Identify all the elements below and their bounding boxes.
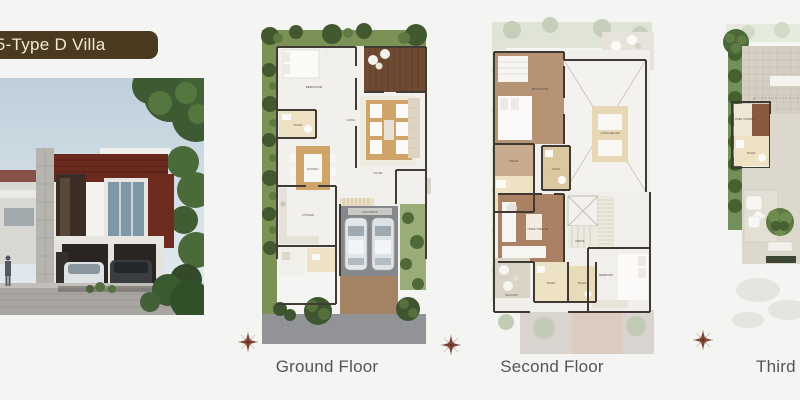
room-label-kitchen: KITCHEN bbox=[302, 214, 314, 217]
car-porch: CAR PORCH bbox=[340, 206, 398, 276]
room-label-toilet5: TOILET bbox=[746, 152, 756, 155]
villa-building bbox=[36, 148, 174, 294]
floor-plan-ground: DECK BEDROOM TOILET DINING LIVING F bbox=[256, 8, 432, 360]
villa-type-title: 75-Type D Villa bbox=[0, 35, 105, 55]
floor-label-third: Third Floor bbox=[756, 357, 800, 377]
room-label-dress2: DRESS bbox=[575, 240, 584, 243]
room-label-toilet2: TOILET bbox=[551, 168, 561, 171]
room-label-toilet4: TOILET bbox=[577, 282, 587, 285]
room-label-car-porch: CAR PORCH bbox=[362, 211, 378, 214]
floor-plan-third: OPEN SHOWER TOILET bbox=[718, 10, 800, 360]
room-label-home-theatre: HOME THEATRE bbox=[528, 228, 549, 231]
room-label-bedroom: BEDROOM bbox=[306, 85, 323, 89]
floor-label-ground: Ground Floor bbox=[240, 357, 414, 377]
deck-area: DECK bbox=[364, 46, 426, 92]
compass-icon bbox=[238, 332, 258, 352]
room-label-bedroom2: BEDROOM bbox=[599, 274, 613, 277]
room-label-dining: DINING bbox=[307, 167, 319, 171]
room-label-bedroom1: BEDROOM bbox=[532, 87, 549, 91]
room-label-toilet: TOILET bbox=[293, 124, 303, 127]
room-label-foyer: FOYER bbox=[373, 172, 382, 175]
room-label-deck: DECK bbox=[402, 54, 410, 57]
room-label-living-below: LIVING BELOW bbox=[600, 132, 620, 135]
brochure-page: 75-Type D Villa bbox=[0, 0, 800, 400]
compass-icon bbox=[441, 335, 461, 355]
floor-plan-second: DECK BEDROOM LIVING BELOW DRESS TOILET T… bbox=[484, 10, 660, 360]
room-label-toilet3: TOILET bbox=[546, 282, 556, 285]
room-label-balcony: BALCONY bbox=[506, 294, 519, 297]
title-banner: 75-Type D Villa bbox=[0, 31, 158, 59]
villa-photo bbox=[0, 78, 204, 315]
room-label-open-shower: OPEN SHOWER bbox=[735, 118, 755, 121]
room-label-dress1: DRESS bbox=[509, 160, 518, 163]
room-label-living: LIVING bbox=[347, 119, 356, 122]
compass-icon bbox=[693, 330, 713, 350]
floor-label-second: Second Floor bbox=[465, 357, 639, 377]
